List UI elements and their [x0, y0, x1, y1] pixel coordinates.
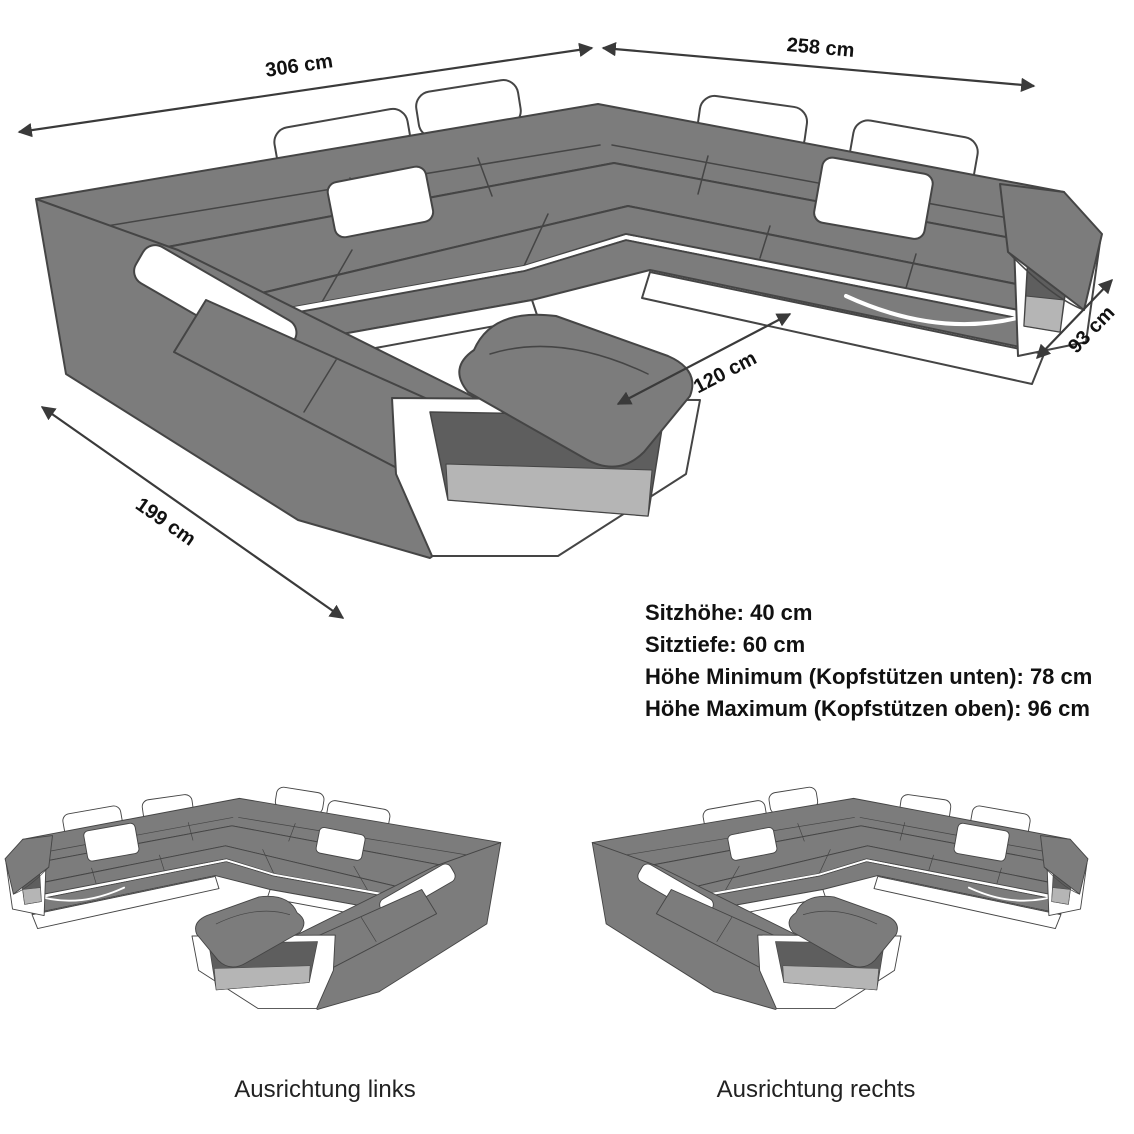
spec-line-hoehe-maximum: Höhe Maximum (Kopfstützen oben): 96 cm	[645, 696, 1090, 721]
spec-line-hoehe-minimum: Höhe Minimum (Kopfstützen unten): 78 cm	[645, 664, 1092, 689]
variant-label-right: Ausrichtung rechts	[717, 1076, 916, 1103]
dimension-label: 306 cm	[264, 50, 334, 82]
dimension-right-width: 258 cm	[603, 34, 1034, 86]
dimension-label: 120 cm	[690, 347, 760, 398]
sofa-orientation-left-illustration	[5, 786, 501, 1009]
variant-label-left: Ausrichtung links	[234, 1076, 415, 1103]
sofa-orientation-right-illustration	[592, 786, 1088, 1009]
spec-line-sitztiefe: Sitztiefe: 60 cm	[645, 632, 805, 657]
spec-line-sitzhoehe: Sitzhöhe: 40 cm	[645, 600, 812, 625]
main-sofa-illustration	[36, 78, 1102, 558]
spec-text-block: Sitzhöhe: 40 cm Sitztiefe: 60 cm Höhe Mi…	[645, 600, 1092, 721]
dimension-label: 258 cm	[786, 34, 856, 62]
dimension-label: 199 cm	[131, 494, 199, 551]
sofa-dimension-diagram: 306 cm 258 cm 199 cm 120 cm 93 cm Sitzhö…	[0, 0, 1134, 1134]
sofa-dimension-diagram-page: 306 cm 258 cm 199 cm 120 cm 93 cm Sitzhö…	[0, 0, 1134, 1134]
